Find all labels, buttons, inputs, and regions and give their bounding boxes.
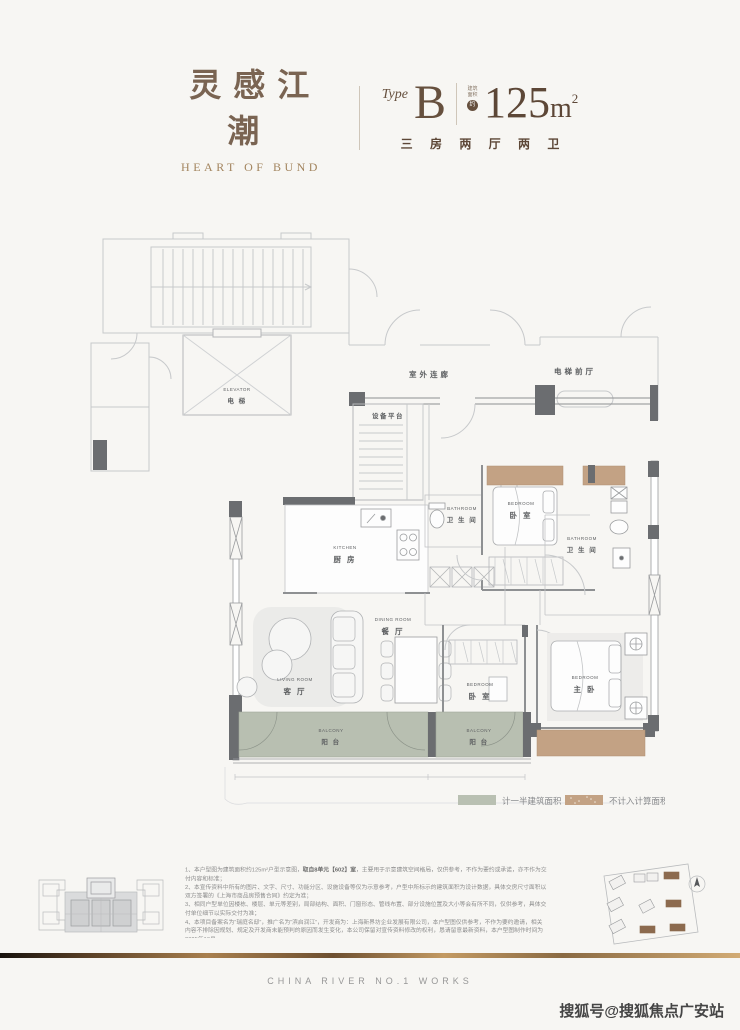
room-living: LIVING ROOM 客 厅 <box>237 607 363 707</box>
label-master-cn: 主 卧 <box>573 684 596 694</box>
wardrobe-symbol <box>449 640 517 664</box>
label-balcony2-en: BALCONY <box>466 728 491 733</box>
label-dining-en: DINING ROOM <box>375 617 412 622</box>
site-plan <box>596 858 706 952</box>
elevator: ELEVATOR 电 梯 <box>183 329 291 415</box>
header-divider <box>359 86 360 150</box>
label-kitchen-en: KITCHEN <box>333 545 356 550</box>
gold-divider-bar <box>0 953 740 958</box>
dining-table-symbol <box>381 637 451 703</box>
type-value: B <box>414 81 446 125</box>
brand-title-cn: 灵感江潮 <box>162 60 337 152</box>
note-item-3: 3、相同户型单位因楼栋、楼层、单元等差别，局部结构、面积、门窗形态、管线布置、部… <box>185 901 547 918</box>
label-bedroom2-cn: 卧 室 <box>509 510 532 520</box>
legend-label-excluded: 不计入计算面积 <box>609 796 665 806</box>
disclaimer-notes: 1、本户型图为建筑面积约125m²户型示意图，取自8单元【602】室，主要用于示… <box>185 866 547 938</box>
bay-window <box>537 730 645 756</box>
type-label: Type <box>382 87 408 103</box>
room-bedroom-2: BEDROOM 卧 室 <box>457 465 625 590</box>
type-divider <box>456 83 457 125</box>
area-exponent: 2 <box>572 91 579 106</box>
sofa-symbol <box>331 611 363 703</box>
note-item-1: 1、本户型图为建筑面积约125m²户型示意图，取自8单元【602】室，主要用于示… <box>185 866 547 883</box>
balcony-1: BALCONY 阳 台 <box>239 712 428 757</box>
dimension-line <box>235 774 525 780</box>
legend-swatch-excluded <box>565 795 603 805</box>
room-master-bedroom: BEDROOM 主 卧 <box>531 625 655 756</box>
desk-symbol <box>489 677 507 701</box>
room-bathroom-2: BATHROOM 卫 生 间 <box>545 487 651 615</box>
label-elevator-hall: 电梯前厅 <box>554 366 596 376</box>
label-bathroom1-cn: 卫 生 间 <box>447 515 478 524</box>
note-item-2: 2、本宣传资料中所有的图片、文字、尺寸、功能分区、设施设备等仅为示意参考，户型中… <box>185 883 547 900</box>
area-note: 建筑 面积 约 <box>467 86 478 111</box>
watermark: 搜狐号@搜狐焦点广安站 <box>559 1000 724 1021</box>
label-bathroom2-cn: 卫 生 间 <box>567 545 598 554</box>
compass-icon <box>689 876 705 892</box>
label-living-cn: 客 厅 <box>282 686 306 696</box>
building-key-plan <box>35 862 167 946</box>
stool-symbol <box>237 677 257 697</box>
bay-window <box>487 466 563 485</box>
side-rooms <box>91 343 171 471</box>
area-unit: m <box>550 93 572 124</box>
room-kitchen: KITCHEN 厨 房 <box>283 497 430 593</box>
area-value: 125m2 <box>484 83 578 125</box>
balcony-2: BALCONY 阳 台 <box>436 712 523 757</box>
label-master-en: BEDROOM <box>572 675 599 680</box>
side-table-symbol <box>262 650 292 680</box>
sink-symbol <box>361 509 391 527</box>
unit-top-wall <box>349 385 658 438</box>
room-bedroom-3: BEDROOM 卧 室 <box>443 625 528 712</box>
legend-swatch-half-area <box>458 795 496 805</box>
label-outdoor-corridor: 室外连廊 <box>409 369 451 379</box>
equipment-platform: 设备平台 <box>353 404 429 500</box>
corridor-walls <box>349 307 658 420</box>
label-bathroom2-en: BATHROOM <box>567 536 597 541</box>
label-kitchen-cn: 厨 房 <box>333 554 356 564</box>
label-elevator-cn: 电 梯 <box>227 396 246 405</box>
label-bedroom2-en: BEDROOM <box>508 501 535 506</box>
approx-badge: 约 <box>467 100 478 111</box>
label-dining-cn: 餐 厅 <box>380 626 404 636</box>
balcony-pier <box>428 712 436 757</box>
label-balcony2-cn: 阳 台 <box>469 737 488 746</box>
toilet-symbol <box>610 520 628 534</box>
label-balcony1-cn: 阳 台 <box>321 737 340 746</box>
label-equipment-platform: 设备平台 <box>372 411 404 420</box>
balcony-pier <box>523 712 531 757</box>
label-elevator-en: ELEVATOR <box>223 387 251 392</box>
legend-label-half-area: 计一半建筑面积 <box>502 796 562 806</box>
rooms-description: 三 房 两 厅 两 卫 <box>394 135 567 152</box>
plan-legend: 计一半建筑面积 不计入计算面积 <box>458 795 665 806</box>
wardrobe-symbol <box>489 557 563 585</box>
room-dining: DINING ROOM 餐 厅 <box>375 617 451 703</box>
balustrade <box>233 759 531 763</box>
area-number: 125 <box>484 78 550 127</box>
stairwell <box>103 233 377 359</box>
label-bathroom1-en: BATHROOM <box>447 506 477 511</box>
footer-caption: CHINA RIVER NO.1 WORKS <box>0 976 740 986</box>
brand-title-en: HEART OF BUND <box>162 160 337 175</box>
label-bedroom3-en: BEDROOM <box>467 682 494 687</box>
type-area-block: Type B 建筑 面积 约 125m2 三 房 两 厅 两 卫 <box>382 83 578 152</box>
header: 灵感江潮 HEART OF BUND Type B 建筑 面积 约 125m2 … <box>0 60 740 175</box>
floorplan: ELEVATOR 电 梯 室外连廊 电梯前厅 设备平台 <box>85 225 665 815</box>
area-note-line2: 面积 <box>467 92 477 98</box>
label-balcony1-en: BALCONY <box>318 728 343 733</box>
label-bedroom3-cn: 卧 室 <box>468 691 491 701</box>
brand-block: 灵感江潮 HEART OF BUND <box>162 60 337 175</box>
toilet-symbol <box>429 503 445 528</box>
label-living-en: LIVING ROOM <box>277 677 313 682</box>
note-item-4: 4、本项目备案名为“瑞庭名邸”，推广名为“滨启润江”，开发商为：上海新界坊企业发… <box>185 918 547 938</box>
